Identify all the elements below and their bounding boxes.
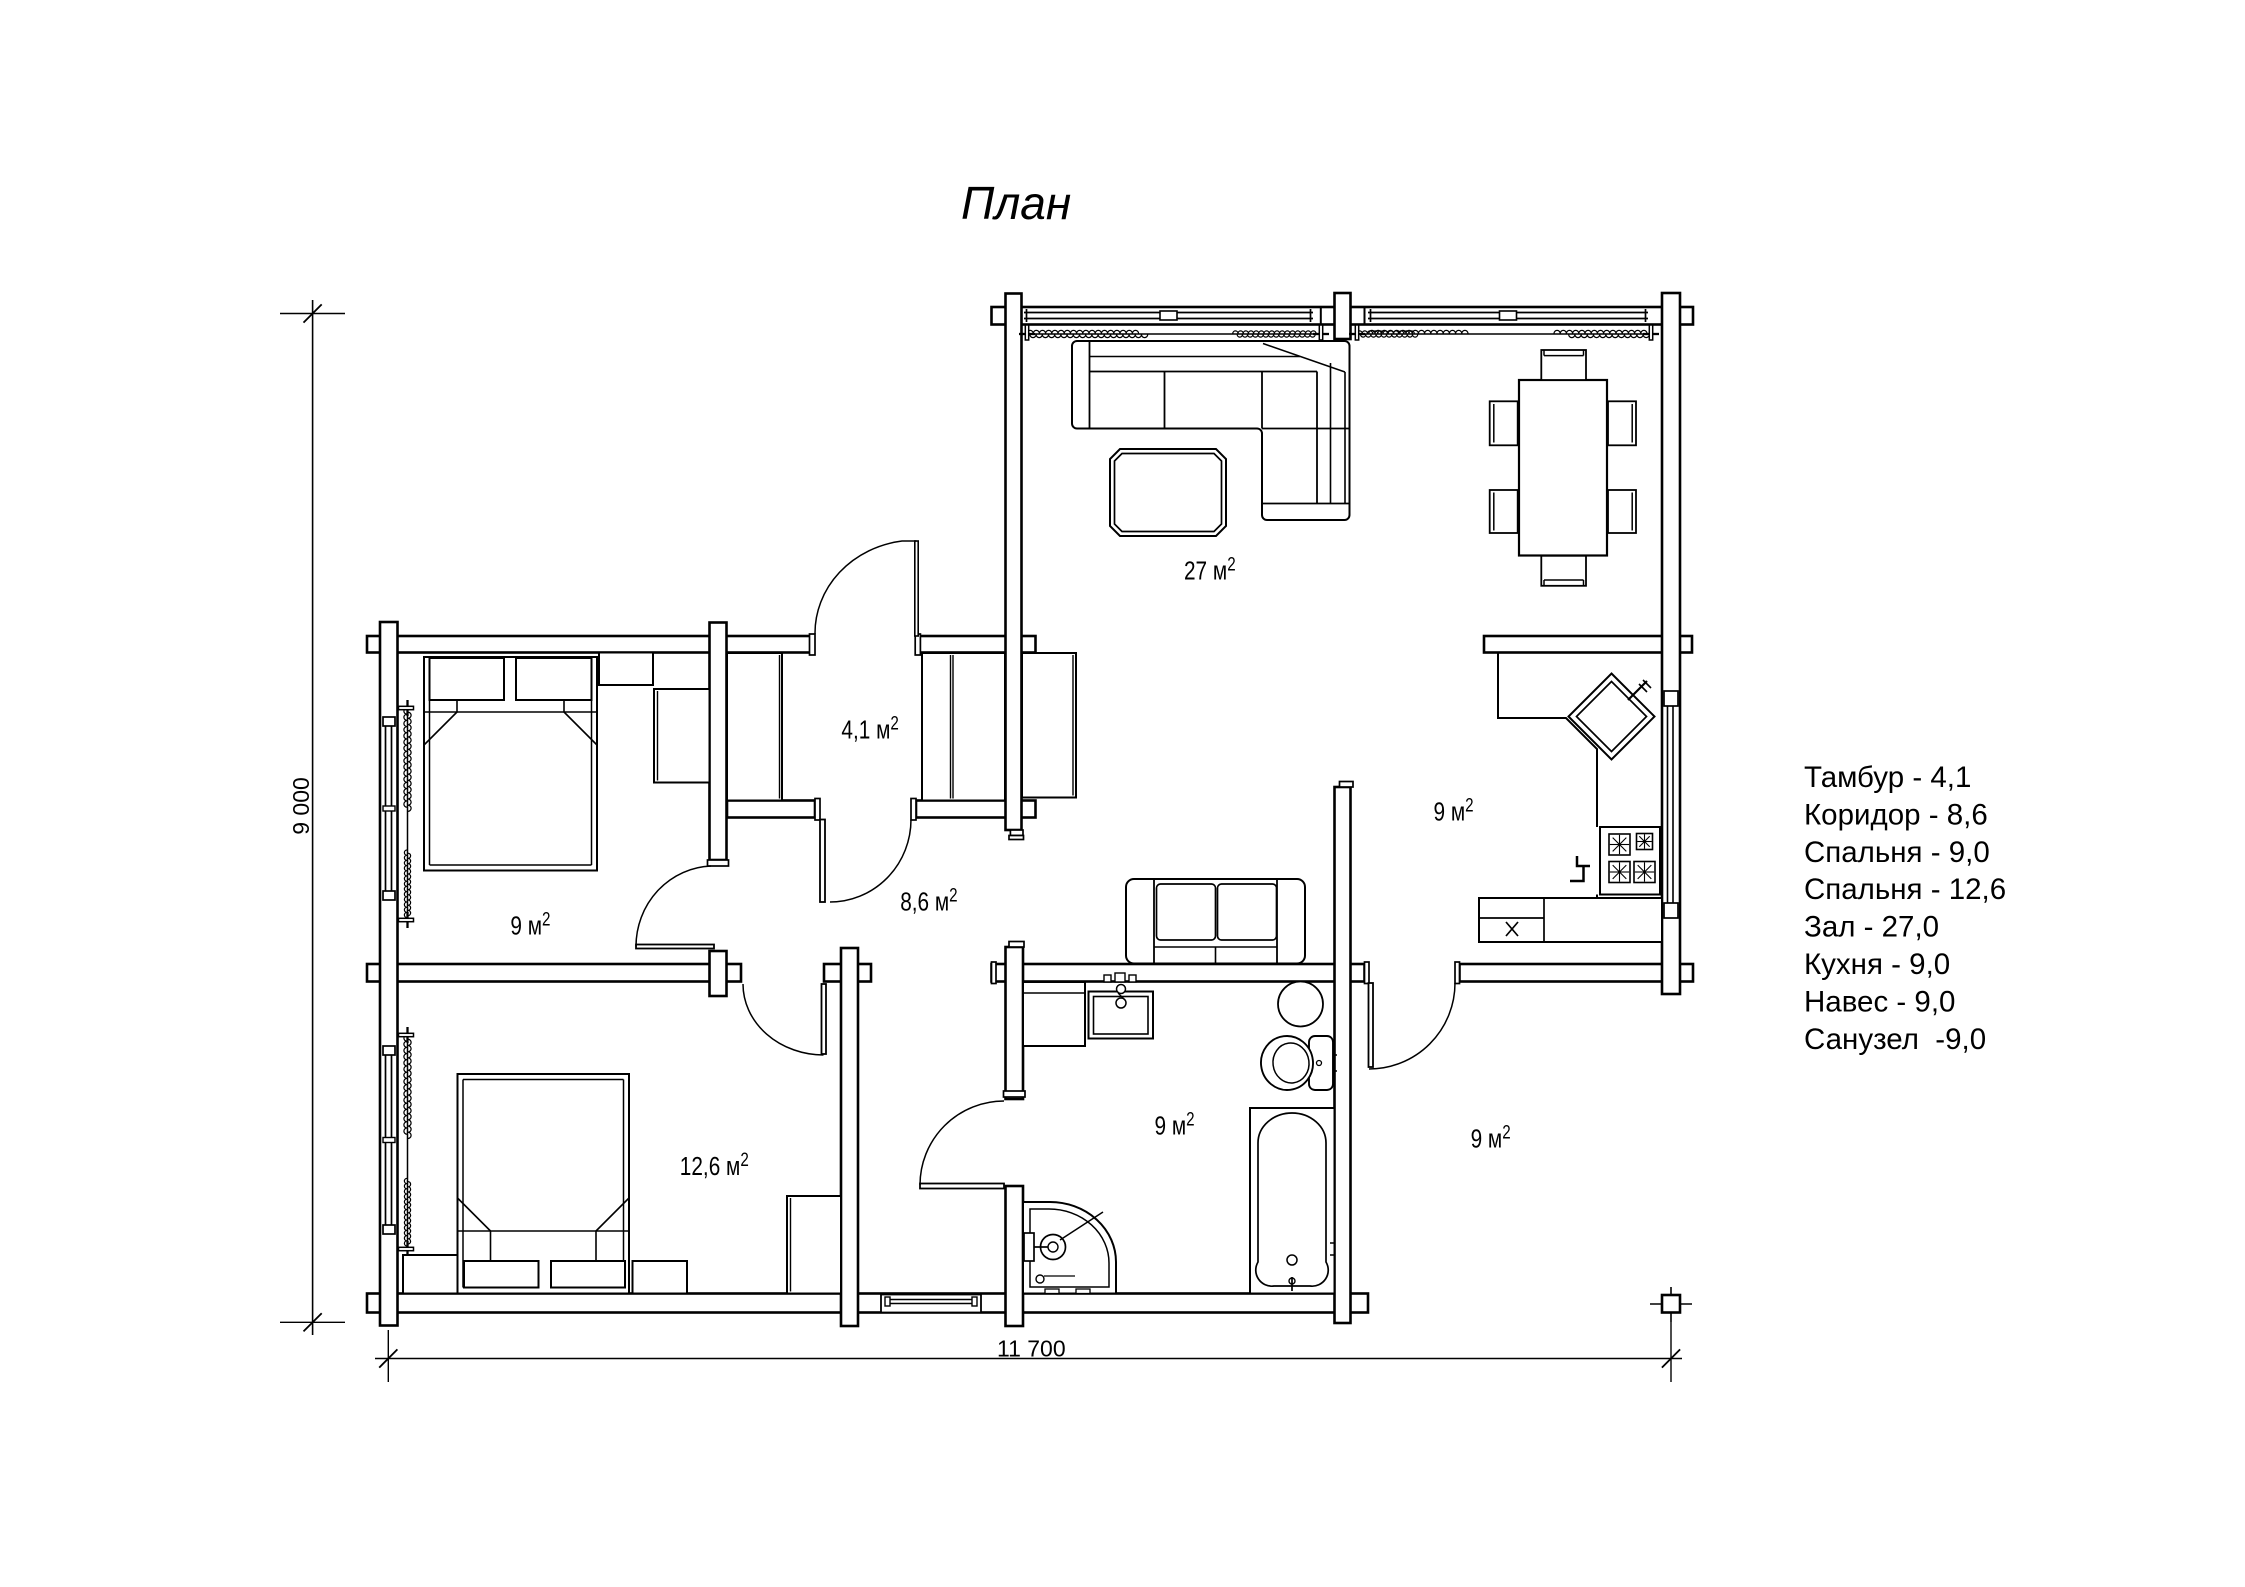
svg-text:Навес - 9,0: Навес - 9,0 bbox=[1804, 985, 1955, 1018]
svg-text:Спальня - 12,6: Спальня - 12,6 bbox=[1804, 873, 2006, 906]
svg-text:9 000: 9 000 bbox=[288, 777, 314, 835]
svg-text:Санузел -9,0: Санузел -9,0 bbox=[1804, 1023, 1986, 1056]
svg-text:Кухня - 9,0: Кухня - 9,0 bbox=[1804, 948, 1950, 981]
svg-text:План: План bbox=[961, 177, 1071, 229]
svg-text:8,6 м2: 8,6 м2 bbox=[900, 884, 957, 916]
svg-text:Тамбур - 4,1: Тамбур - 4,1 bbox=[1804, 761, 1971, 794]
svg-text:Зал - 27,0: Зал - 27,0 bbox=[1804, 911, 1939, 944]
svg-text:12,6 м2: 12,6 м2 bbox=[680, 1148, 749, 1180]
svg-text:4,1 м2: 4,1 м2 bbox=[841, 712, 898, 744]
svg-text:Коридор - 8,6: Коридор - 8,6 bbox=[1804, 798, 1988, 831]
svg-text:11 700: 11 700 bbox=[997, 1336, 1066, 1362]
svg-text:Спальня - 9,0: Спальня - 9,0 bbox=[1804, 836, 1990, 869]
